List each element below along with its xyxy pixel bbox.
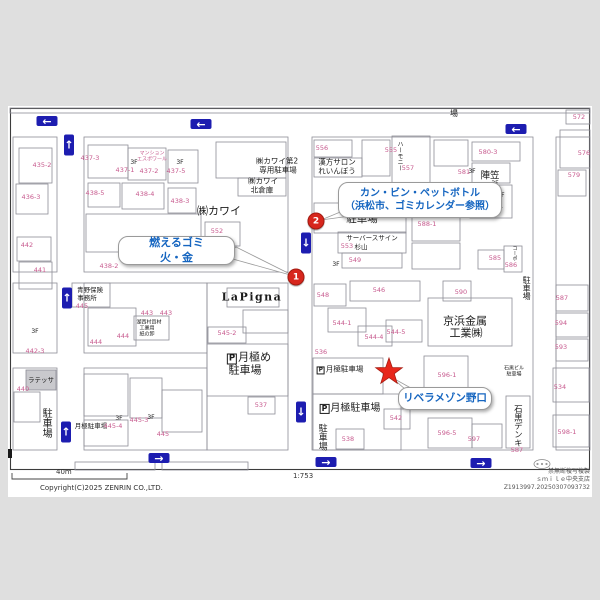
map-label: 杉山	[355, 244, 368, 251]
oneway-arrow-right-icon: →	[149, 453, 170, 463]
parcel-number: 438-3	[171, 198, 190, 205]
parcel-number: 444	[90, 339, 102, 346]
parking-symbol-icon: P	[317, 366, 325, 374]
map-label: P月極駐車場	[320, 404, 381, 414]
parcel-number: 442-3	[26, 348, 45, 355]
parcel-number: 594	[555, 320, 567, 327]
oneway-arrow-down-icon: ↓	[301, 233, 311, 254]
parcel-number: 534	[554, 384, 566, 391]
map-label: 駐車場	[506, 373, 521, 378]
map-label: 事務所	[77, 295, 97, 302]
no-copy-notice: 禁無断複写複製	[504, 468, 590, 476]
map-label: 駐車場	[229, 365, 262, 376]
footer-right-block: 禁無断複写複製 ｓｍｉｌｅ中央支店 Z1913997.2025030709373…	[504, 468, 590, 491]
parcel-number: 544-4	[365, 334, 384, 341]
parcel-number: 596-5	[438, 430, 457, 437]
oneway-arrow-up-icon: ↑	[62, 288, 72, 309]
parcel-number: 596-1	[438, 372, 457, 379]
callout-can-bin-pet: カン・ビン・ペットボトル（浜松市、ゴミカレンダー参照）	[338, 182, 502, 218]
parcel-number: 443	[141, 310, 153, 317]
parcel-number: 576	[578, 150, 590, 157]
map-label: ㈱カワイ第2	[256, 157, 298, 165]
parcel-number: 546	[373, 287, 385, 294]
map-label: 3F	[31, 329, 38, 335]
map-label: P月極駐車場	[317, 365, 364, 374]
map-label: 専用駐車場	[259, 166, 297, 174]
copyright-text: Copyright(C)2025 ZENRIN CO.,LTD.	[40, 484, 163, 492]
map-label: ㈱カワイ	[197, 206, 241, 217]
parcel-number: 441	[34, 267, 46, 274]
parking-symbol-icon: P	[320, 404, 330, 414]
parcel-number: 588-1	[418, 221, 437, 228]
parcel-number: 440	[17, 386, 29, 393]
map-label: LaPigna	[222, 292, 283, 303]
parcel-number: 438-4	[136, 191, 155, 198]
oneway-arrow-right-icon: →	[471, 458, 492, 468]
oneway-arrow-up-icon: ↑	[64, 135, 74, 156]
parcel-number: 536	[315, 349, 327, 356]
parcel-number: 572	[573, 114, 585, 121]
parcel-number: 579	[568, 172, 580, 179]
branch-name: ｓｍｉｌｅ中央支店	[504, 476, 590, 484]
parcel-number: 548	[317, 292, 329, 299]
callout-text: カン・ビン・ペットボトル	[360, 187, 480, 200]
callout-text: 燃えるゴミ	[149, 236, 204, 250]
map-label: サーバースサイン	[346, 235, 398, 242]
parcel-number: 587	[556, 295, 568, 302]
parcel-number: 438-2	[100, 263, 119, 270]
parcel-number: 549	[349, 257, 361, 264]
parcel-number: 553	[341, 243, 353, 250]
parcel-number: 445	[157, 431, 169, 438]
parcel-number: 437-3	[81, 155, 100, 162]
parcel-number: 545-2	[218, 330, 237, 337]
oneway-arrow-down-icon: ↓	[296, 402, 306, 423]
map-label: 石黒デンキ	[513, 405, 522, 448]
map-label: 月極駐車場	[75, 423, 108, 430]
map-label: れいんぼう	[318, 167, 356, 175]
map-label: エスポワール	[137, 158, 167, 163]
parcel-number: 557	[402, 165, 414, 172]
parcel-number: 542	[390, 415, 402, 422]
parcel-number: 537	[255, 402, 267, 409]
parcel-number: 443	[160, 310, 172, 317]
parcel-number: 552	[211, 228, 223, 235]
scale-ratio: 1:753	[293, 472, 313, 480]
callout-text: 火・金	[160, 251, 193, 265]
parcel-number: 437-1	[116, 167, 135, 174]
parcel-number: 445	[76, 303, 88, 310]
map-label: 駐車場	[316, 424, 325, 451]
callout-text: リベラメゾン野口	[403, 392, 487, 406]
parcel-number: 556	[316, 145, 328, 152]
map-label: 紙の卸	[139, 333, 154, 338]
map-label: コーポ	[511, 246, 516, 261]
parcel-number: 597	[468, 436, 480, 443]
oneway-arrow-right-icon: →	[316, 457, 337, 467]
parcel-number: 437-2	[140, 168, 159, 175]
map-label: 北倉庫	[251, 186, 274, 194]
parcel-number: 544-5	[387, 329, 406, 336]
map-label: 3F	[176, 160, 183, 166]
map-label: 場	[450, 110, 458, 118]
oneway-arrow-left-icon: ←	[191, 119, 212, 129]
map-label: 駐車場	[522, 276, 530, 300]
map-label: ㈱カワイ	[248, 177, 278, 185]
parcel-number: 538	[342, 436, 354, 443]
parcel-number: 444	[117, 333, 129, 340]
oneway-arrow-left-icon: ←	[506, 124, 527, 134]
callout-text: （浜松市、ゴミカレンダー参照）	[345, 200, 495, 213]
parcel-number: 435-2	[33, 162, 52, 169]
parcel-number: 438-5	[86, 190, 105, 197]
scale-label: 40m	[56, 468, 72, 476]
map-label: 3F	[332, 262, 339, 268]
map-marker-1: 1	[288, 269, 305, 286]
callout-libera-maison-noguchi: リベラメゾン野口	[398, 387, 492, 410]
parcel-number: 587	[511, 447, 523, 454]
map-label: 青野保険	[77, 287, 103, 294]
parcel-number: 590	[455, 289, 467, 296]
map-label: 漢方サロン	[318, 158, 356, 166]
parcel-number: 581	[458, 169, 470, 176]
parcel-number: 586	[505, 262, 517, 269]
parcel-number: 544-1	[333, 320, 352, 327]
oneway-arrow-left-icon: ←	[37, 116, 58, 126]
parcel-number: 442	[21, 242, 33, 249]
map-screenshot: ㈱カワイ㈱カワイ第2専用駐車場㈱カワイ北倉庫漢方サロンれいんぼう駐車場サーバース…	[0, 0, 600, 600]
parcel-number: 436-3	[22, 194, 41, 201]
parcel-number: 580-3	[479, 149, 498, 156]
oneway-arrow-up-icon: ↑	[61, 422, 71, 443]
parcel-number: 593	[555, 344, 567, 351]
parcel-number: 437-5	[167, 168, 186, 175]
map-label: 駐車場	[40, 408, 50, 438]
map-label-layer: ㈱カワイ㈱カワイ第2専用駐車場㈱カワイ北倉庫漢方サロンれいんぼう駐車場サーバース…	[0, 0, 600, 600]
parcel-number: 445-4	[104, 423, 123, 430]
parcel-number: 555	[385, 147, 397, 154]
map-label: 京浜金属	[443, 316, 487, 327]
callout-burnable-garbage: 燃えるゴミ火・金	[118, 236, 235, 265]
parcel-number: 445-3	[130, 417, 149, 424]
print-code: Z1913997.20250307093732	[504, 484, 590, 492]
map-label: ラテッサ	[28, 377, 54, 384]
parcel-number: 598-1	[558, 429, 577, 436]
map-marker-2: 2	[308, 213, 325, 230]
map-label: 工業㈱	[450, 328, 483, 339]
parcel-number: 585	[489, 255, 501, 262]
